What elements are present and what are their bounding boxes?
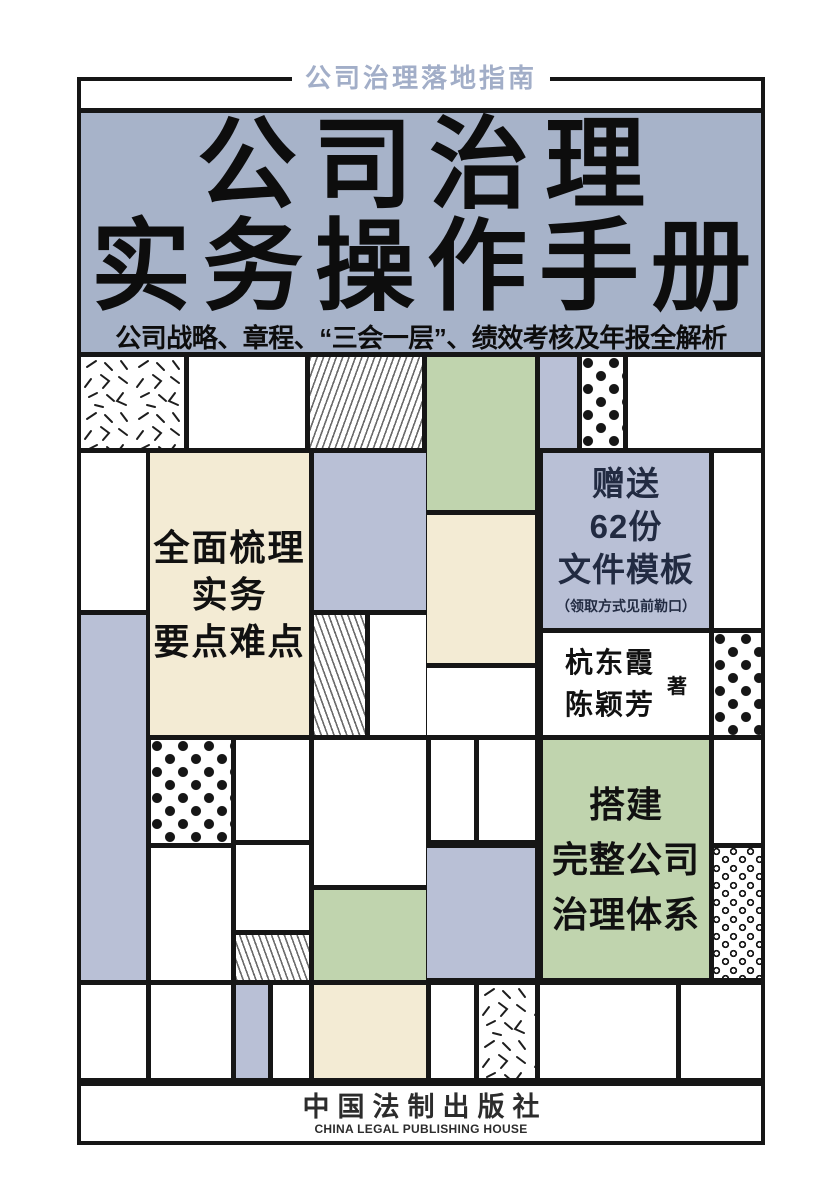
author-role: 著 bbox=[667, 670, 687, 699]
dots-pattern-block bbox=[714, 633, 761, 735]
hatch-pattern-block bbox=[310, 357, 422, 448]
series-tagline: 公司治理落地指南 bbox=[292, 64, 550, 92]
lavender-block bbox=[314, 453, 426, 610]
white-block bbox=[370, 615, 426, 735]
white-block bbox=[714, 740, 761, 843]
authors-names: 杭东霞 陈颖芳 bbox=[565, 642, 655, 726]
white-block bbox=[236, 740, 309, 840]
selling-point-left: 全面梳理 实务 要点难点 bbox=[150, 453, 309, 735]
title-panel: 公司治理 实务操作手册 公司战略、章程、“三会一层”、绩效考核及年报全解析 bbox=[81, 108, 761, 352]
white-block bbox=[427, 668, 535, 735]
rings-pattern-block bbox=[714, 848, 761, 978]
publisher-name-cn: 中国法制出版社 bbox=[295, 1092, 548, 1122]
white-block bbox=[314, 740, 426, 885]
white-block bbox=[628, 357, 761, 448]
white-block bbox=[431, 740, 474, 840]
selling-point-right: 搭建 完整公司 治理体系 bbox=[543, 740, 709, 978]
publisher-name-en: CHINA LEGAL PUBLISHING HOUSE bbox=[314, 1122, 527, 1136]
white-block bbox=[431, 985, 474, 1078]
lavender-block bbox=[81, 615, 146, 980]
hatch-pattern-block bbox=[314, 615, 365, 735]
scatter-pattern-art bbox=[479, 985, 535, 1078]
white-block bbox=[236, 845, 309, 930]
white-block bbox=[189, 357, 305, 448]
scatter-pattern-block bbox=[479, 985, 535, 1078]
white-block bbox=[151, 848, 231, 980]
white-block bbox=[273, 985, 309, 1078]
cover-frame: 公司治理落地指南 公司治理 实务操作手册 公司战略、章程、“三会一层”、绩效考核… bbox=[77, 77, 765, 1145]
publisher-band: 中国法制出版社 CHINA LEGAL PUBLISHING HOUSE bbox=[81, 1082, 761, 1141]
book-title-line1: 公司治理 bbox=[181, 116, 661, 216]
scatter-pattern-art bbox=[81, 357, 184, 448]
white-block bbox=[479, 740, 535, 840]
dots-pattern-block bbox=[582, 357, 623, 448]
dots-pattern-block bbox=[151, 740, 231, 843]
white-block bbox=[540, 985, 676, 1078]
green-block bbox=[427, 357, 535, 510]
green-block bbox=[314, 890, 426, 980]
gift-badge: 赠送 62份 文件模板 （领取方式见前勒口） bbox=[543, 453, 709, 628]
mosaic-grid: 全面梳理 实务 要点难点 赠送 62份 文件模板 （领取方式见前勒口） 杭东霞 … bbox=[81, 352, 761, 1082]
white-block bbox=[81, 985, 146, 1078]
white-block bbox=[681, 985, 761, 1078]
lavender-block bbox=[540, 357, 577, 448]
book-title-line2: 实务操作手册 bbox=[79, 218, 763, 318]
cream-block bbox=[314, 985, 426, 1078]
gift-note: （领取方式见前勒口） bbox=[556, 596, 696, 616]
white-block bbox=[151, 985, 231, 1078]
authors-block: 杭东霞 陈颖芳 著 bbox=[543, 633, 709, 735]
white-block bbox=[714, 453, 761, 628]
hatch-pattern-block bbox=[236, 935, 309, 980]
book-subtitle: 公司战略、章程、“三会一层”、绩效考核及年报全解析 bbox=[115, 318, 727, 355]
gift-badge-text: 赠送 62份 文件模板 bbox=[558, 462, 694, 591]
lavender-block bbox=[236, 985, 268, 1078]
book-cover-page: 公司治理落地指南 公司治理 实务操作手册 公司战略、章程、“三会一层”、绩效考核… bbox=[0, 0, 840, 1200]
white-block bbox=[81, 453, 146, 610]
lavender-block bbox=[427, 848, 535, 978]
scatter-pattern-block bbox=[81, 357, 184, 448]
cream-block bbox=[427, 515, 535, 663]
